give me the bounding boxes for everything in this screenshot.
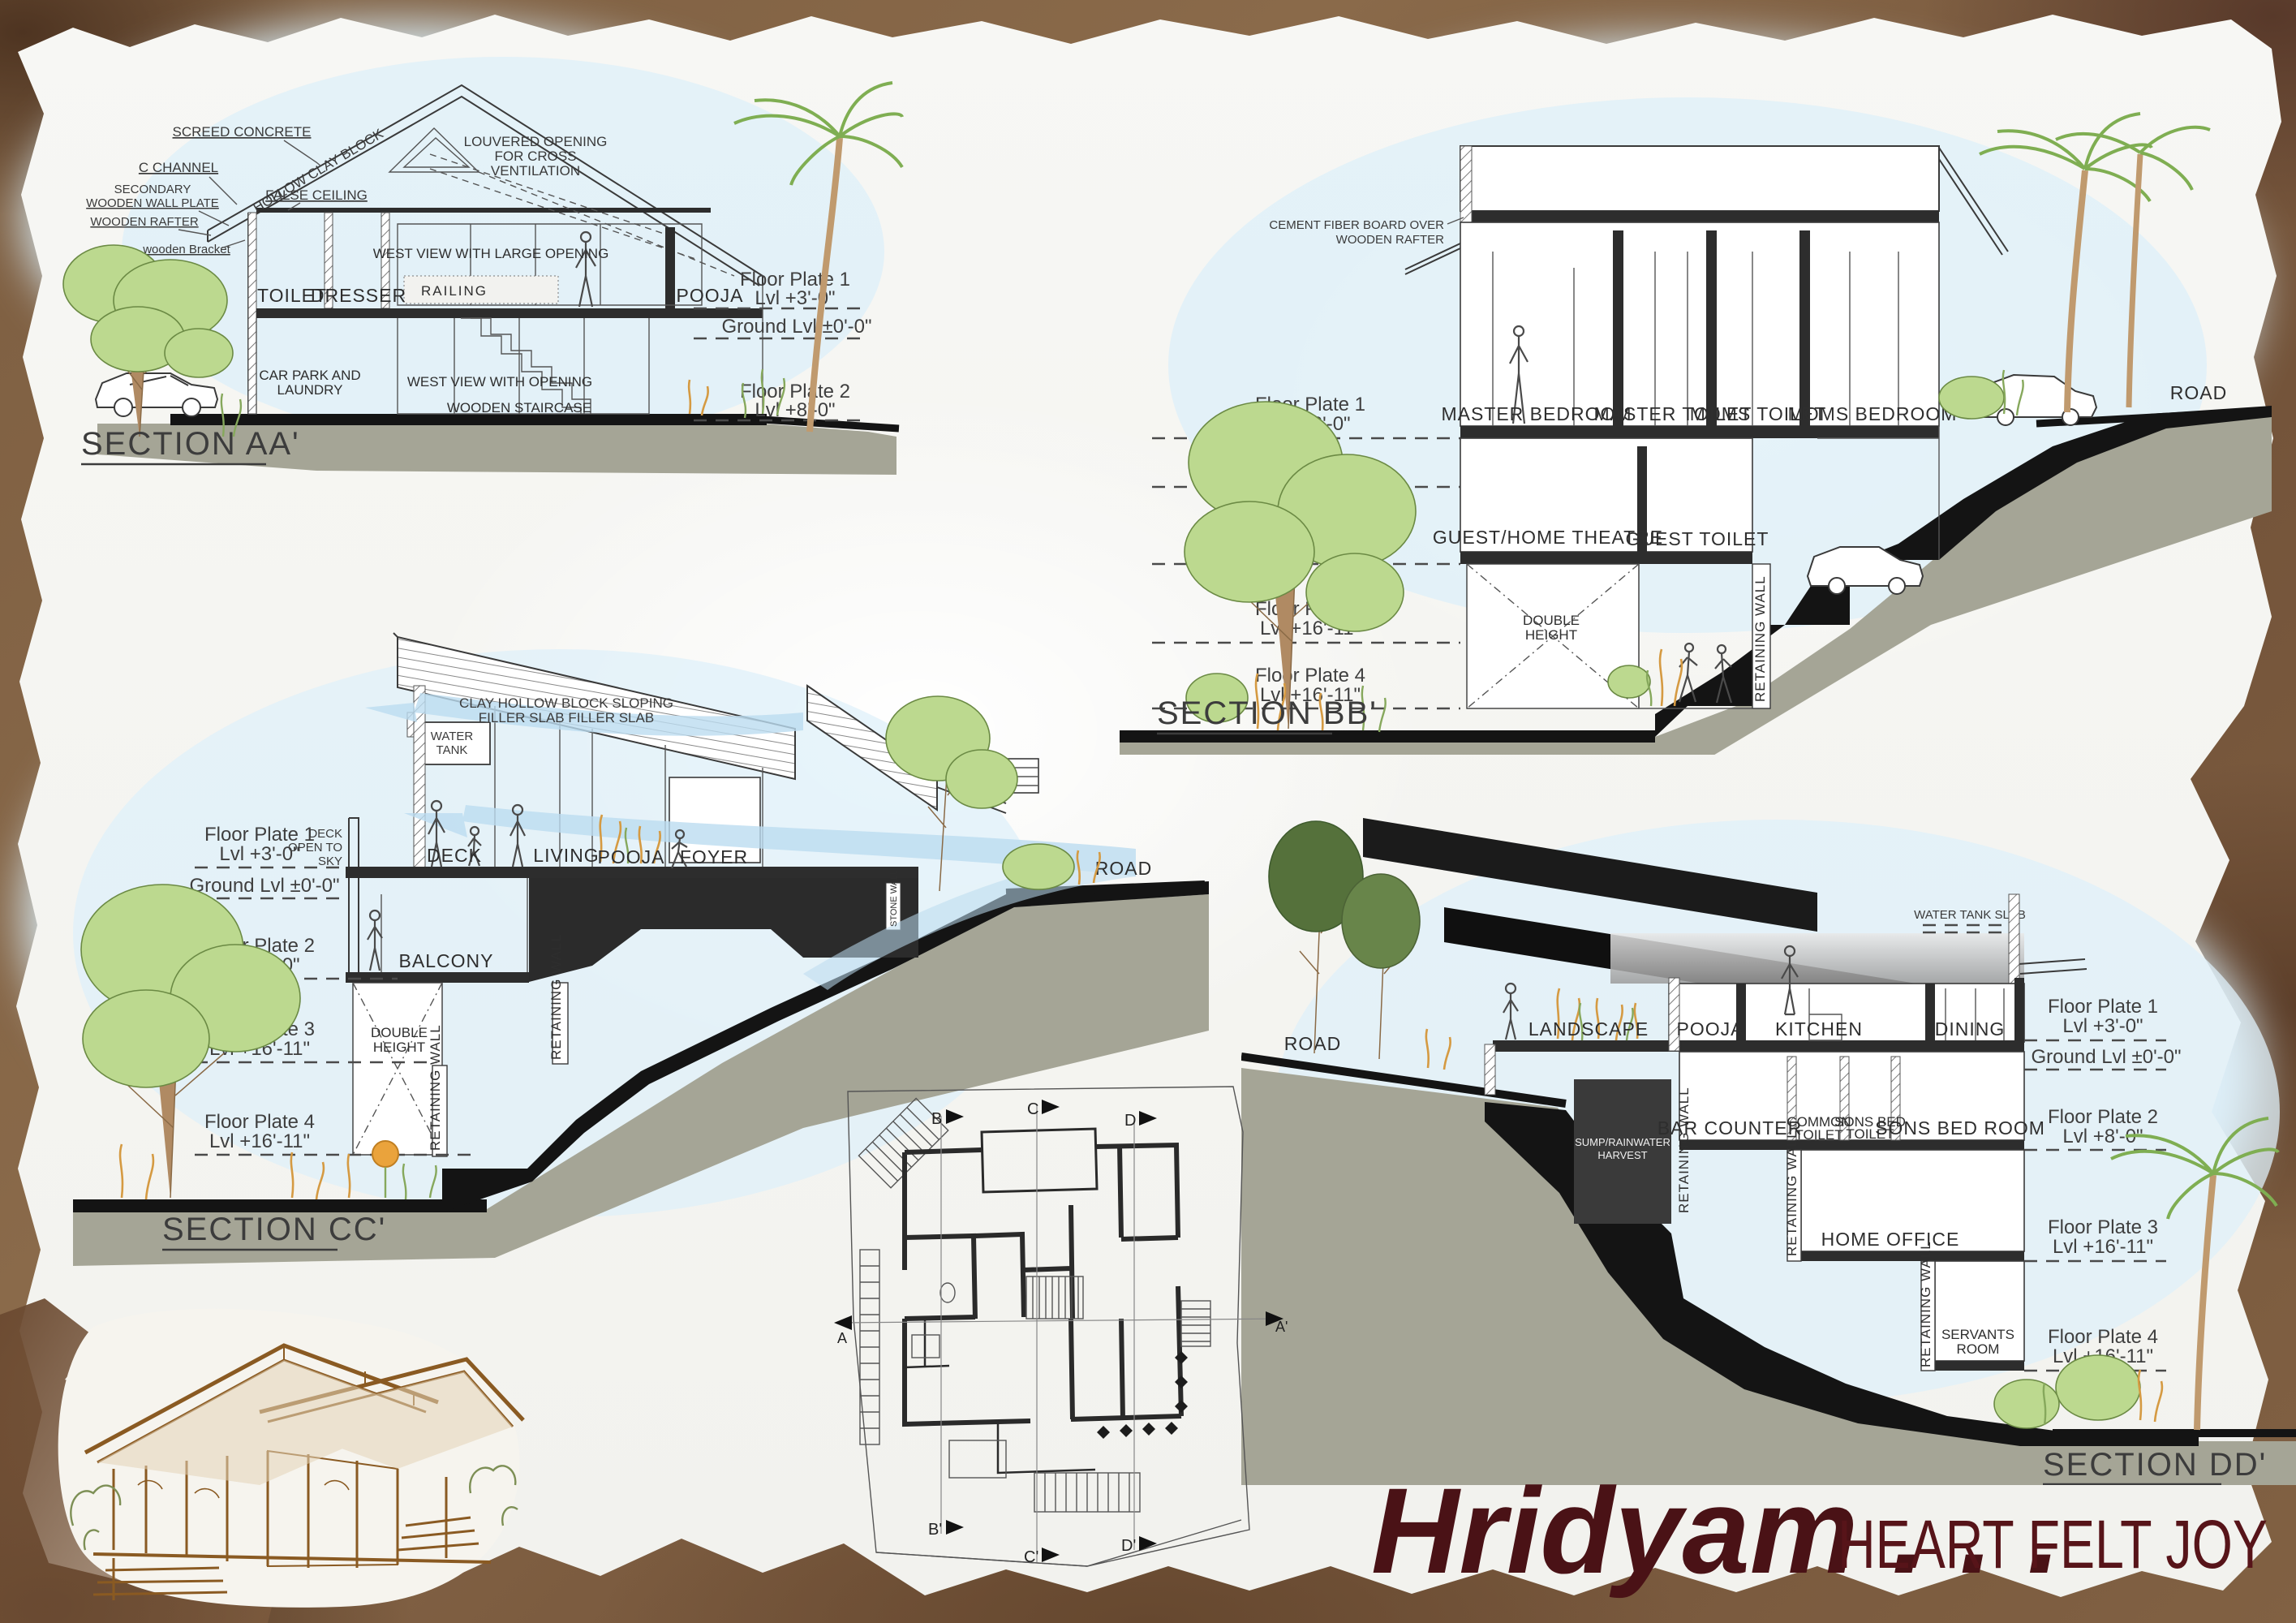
annotation: FILLER SLAB FILLER SLAB: [479, 710, 654, 725]
road-label: ROAD: [2170, 382, 2227, 403]
annotation: WOODEN STAIRCASE: [447, 400, 591, 415]
annotation: C CHANNEL: [139, 160, 218, 175]
road-label: ROAD: [1284, 1033, 1341, 1054]
concept-sketch: [16, 1282, 535, 1623]
retaining-wall-label: RETAINING WALL: [428, 1024, 443, 1151]
project-title: Hridyam . . . HEART FELT JOY: [1363, 1461, 2280, 1615]
svg-text:Floor Plate 1: Floor Plate 1: [204, 824, 315, 846]
sump-label: SUMP/RAINWATER: [1575, 1136, 1670, 1148]
stair-hatch: [1034, 1473, 1140, 1512]
svg-text:Lvl +3'-0": Lvl +3'-0": [219, 843, 299, 865]
section-title: SECTION AA': [81, 426, 300, 462]
room-label: BAR COUNTER: [1658, 1117, 1802, 1139]
annotation: SKY: [318, 855, 342, 868]
room-label: ROOM: [1957, 1341, 2000, 1357]
annotation: FOR CROSS: [494, 149, 576, 164]
svg-text:Lvl +16'-11": Lvl +16'-11": [2053, 1236, 2153, 1258]
section-markers: B C D B' C' D' A A': [834, 1100, 1288, 1566]
svg-text:C': C': [1024, 1548, 1038, 1566]
annotation: CLAY HOLLOW BLOCK SLOPING: [459, 695, 673, 711]
road-label: ROAD: [1095, 858, 1152, 879]
svg-text:C: C: [1027, 1100, 1038, 1118]
room-label: SERVANTS: [1941, 1327, 2014, 1342]
svg-text:Lvl +8'-0": Lvl +8'-0": [755, 399, 835, 421]
retaining-wall-label: RETAINING WALL: [1784, 1130, 1799, 1256]
floor-plan-drawing: B C D B' C' D' A A': [828, 1075, 1298, 1611]
svg-text:Ground Lvl ±0'-0": Ground Lvl ±0'-0": [189, 875, 339, 897]
room-label: DOUBLE: [371, 1025, 428, 1040]
svg-text:D': D': [1121, 1537, 1136, 1555]
svg-text:Ground Lvl ±0'-0": Ground Lvl ±0'-0": [2031, 1046, 2181, 1068]
room-label: HEIGHT: [373, 1040, 425, 1055]
svg-text:A: A: [837, 1330, 847, 1346]
retaining-wall-label: RETAINING WALL: [548, 933, 564, 1060]
svg-text:Floor Plate 3: Floor Plate 3: [2048, 1216, 2158, 1238]
svg-text:Lvl +3'-0": Lvl +3'-0": [2062, 1015, 2143, 1037]
annotation: WEST VIEW WITH OPENING: [407, 374, 592, 390]
room-label: POOJA: [598, 846, 665, 867]
room-label: SONS BED ROOM: [1875, 1117, 2045, 1139]
room-label: DINING: [1935, 1018, 2006, 1040]
annotation: wooden Bracket: [142, 243, 230, 256]
section-bb-drawing: RETAINING WALL DOUBLE HEIGHT CEMENT FIBE…: [1120, 57, 2272, 755]
svg-text:Floor Plate 4: Floor Plate 4: [204, 1111, 315, 1133]
room-label: LANDSCAPE: [1529, 1018, 1649, 1040]
svg-text:A': A': [1275, 1319, 1288, 1335]
annotation: SCREED CONCRETE: [173, 124, 312, 140]
room-label: FOYER: [680, 846, 748, 867]
svg-text:Floor Plate 2: Floor Plate 2: [2048, 1106, 2158, 1128]
room-label: DRESSER: [311, 285, 406, 306]
room-label: GUEST TOILET: [1626, 528, 1769, 549]
svg-text:Floor Plate 4: Floor Plate 4: [1255, 665, 1365, 687]
room-label: LAUNDRY: [277, 382, 343, 398]
room-label: MOMS BEDROOM: [1788, 403, 1958, 424]
svg-text:B': B': [928, 1521, 942, 1539]
annotation: WEST VIEW WITH LARGE OPENING: [373, 246, 609, 261]
room-label: DOUBLE: [1523, 613, 1580, 628]
retaining-wall-label: RETAINING WALL: [1752, 575, 1768, 702]
room-label: CAR PARK AND: [259, 368, 360, 383]
section-aa-drawing: SCREED CONCRETE HOLLOW CLAY BLOCK C CHAN…: [49, 32, 909, 487]
presentation-board: SCREED CONCRETE HOLLOW CLAY BLOCK C CHAN…: [0, 0, 2296, 1623]
room-label: LIVING: [533, 845, 599, 866]
annotation: WOODEN WALL PLATE: [86, 196, 219, 210]
annotation: FALSE CEILING: [265, 187, 368, 203]
svg-text:Floor Plate 1: Floor Plate 1: [2048, 996, 2158, 1018]
room-label: BALCONY: [399, 950, 494, 971]
svg-text:B: B: [931, 1110, 942, 1128]
annotation: WOODEN RAFTER: [1336, 233, 1444, 247]
sump-label: HARVEST: [1597, 1149, 1647, 1161]
svg-text:Lvl +16'-11": Lvl +16'-11": [209, 1130, 310, 1152]
annotation: CEMENT FIBER BOARD OVER: [1269, 218, 1444, 232]
svg-text:Ground Lvl ±0'-0": Ground Lvl ±0'-0": [721, 316, 871, 338]
stone-wall-label: STONE WALL: [889, 870, 899, 927]
paver-diamonds: [1097, 1351, 1188, 1439]
room-label: DECK: [427, 845, 482, 866]
svg-text:D: D: [1124, 1112, 1136, 1130]
room-label: POOJA: [1677, 1018, 1744, 1040]
annotation: TANK: [436, 743, 468, 757]
annotation: VENTILATION: [491, 163, 580, 179]
section-title: SECTION CC': [162, 1212, 386, 1247]
retaining-wall-label: RETAINING WALL: [1918, 1241, 1933, 1367]
room-label: HOME OFFICE: [1821, 1229, 1960, 1250]
svg-text:Floor Plate 4: Floor Plate 4: [2048, 1326, 2158, 1348]
annotation: RAILING: [421, 283, 488, 299]
plan-walls: [905, 1129, 1181, 1473]
annotation: WATER: [431, 730, 474, 743]
room-label: POOJA: [677, 285, 744, 306]
title-caps: HEART FELT JOY: [1838, 1506, 2268, 1582]
annotation: SECONDARY: [114, 183, 191, 196]
section-dd-drawing: WATER TANK SLAB: [1241, 771, 2296, 1485]
annotation: LOUVERED OPENING: [464, 134, 608, 149]
car-icon: [96, 373, 217, 416]
retaining-wall-label: RETAINING WALL: [1676, 1087, 1692, 1213]
room-label: HEIGHT: [1525, 627, 1577, 643]
stair-hatch: [1181, 1301, 1210, 1346]
annotation: WOODEN RAFTER: [90, 215, 198, 229]
room-label: KITCHEN: [1775, 1018, 1863, 1040]
